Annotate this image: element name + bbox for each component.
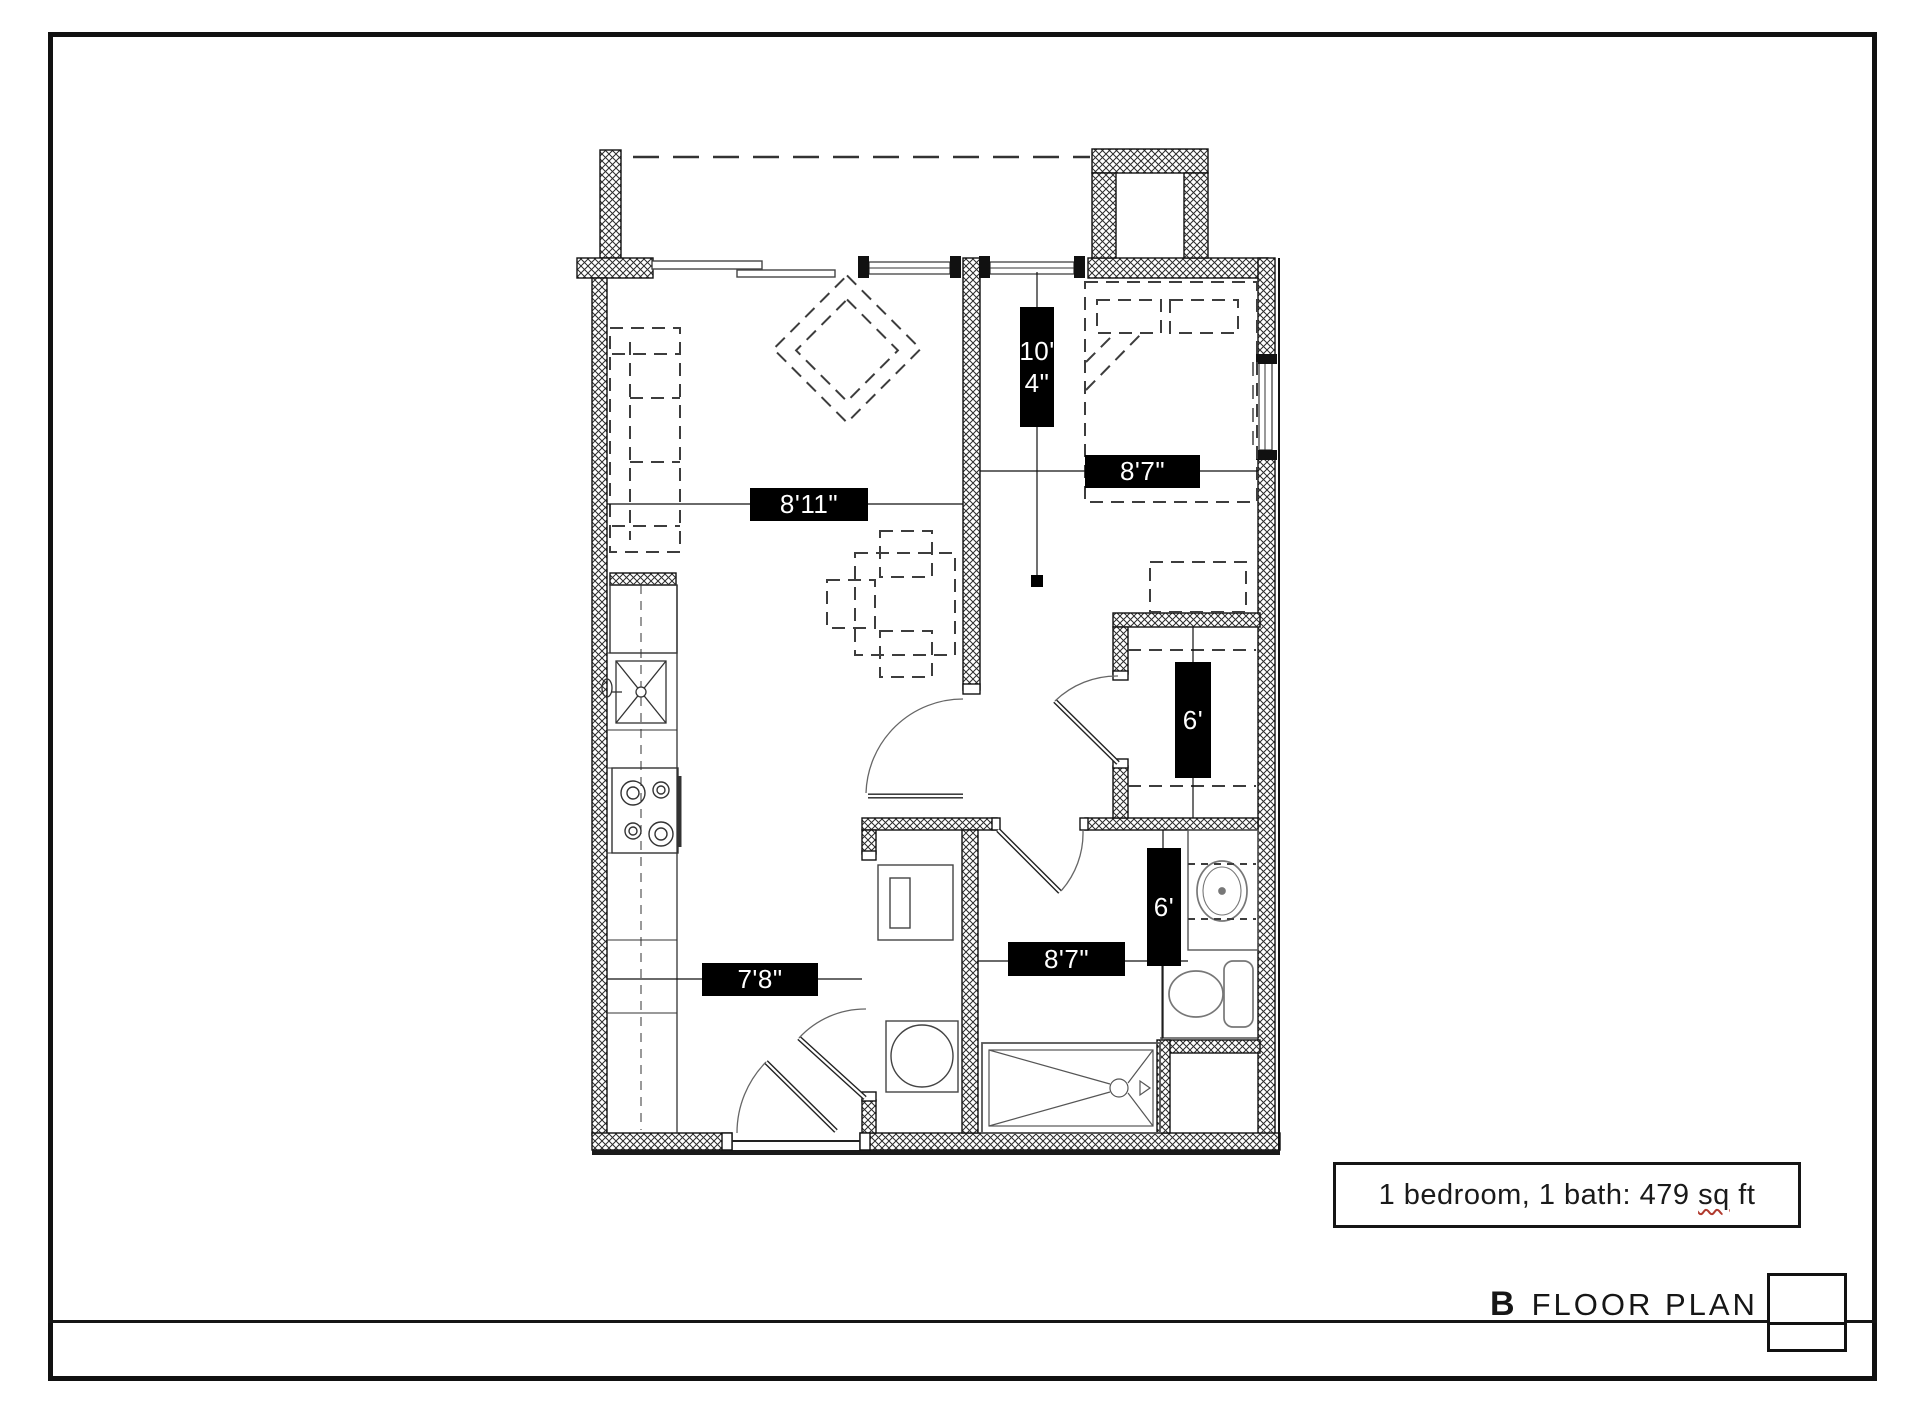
furniture-dining-set [827,531,955,677]
furniture-dresser [1150,562,1246,612]
doors [737,676,1118,1133]
bathroom-fixtures [982,830,1258,1133]
washer [886,1021,958,1092]
dim-label-bath-vertical: 6' [1147,848,1181,966]
kitchen-sink [602,661,666,723]
washer-dryer [878,865,958,1092]
entry-door [737,1062,836,1133]
dim-label-closet-vertical: 6' [1175,662,1211,778]
furniture-armchair [773,275,920,422]
toilet [1169,961,1253,1027]
unit-summary-text: 1 bedroom, 1 bath: 479 [1379,1179,1698,1212]
dim-text: 10' [1019,335,1054,368]
dim-text: 6' [1183,704,1203,737]
plan-title: B FLOOR PLAN [1490,1285,1758,1324]
vanity-sink [1197,861,1247,921]
laundry-closet-door [799,1009,866,1098]
stove [612,768,680,853]
furniture-couch [610,328,680,552]
bathroom-door [998,830,1083,892]
floor-plan-sheet: 10' 4" 8'7" 8'11" 6' 6' 8'7" 7'8" 1 bedr… [0,0,1920,1423]
dim-label-bedroom-vertical: 10' 4" [1020,307,1054,427]
shower [982,1043,1160,1133]
kitchen-fixtures [602,585,680,1133]
dryer [878,865,953,940]
title-block-divider [1770,1322,1844,1325]
dim-text: 8'7" [1044,943,1089,976]
title-block-box [1767,1273,1847,1352]
dim-text: 4" [1025,367,1050,400]
sliding-door-panel [737,270,835,277]
closet-door [1055,676,1118,763]
dim-label-bath-horizontal: 8'7" [1008,942,1125,976]
dim-text: 6' [1154,891,1174,924]
sliding-door-panel [652,261,762,269]
dim-label-kitchen-horizontal: 7'8" [702,963,818,996]
plan-letter: B [1490,1285,1516,1324]
bottom-wall-footing [592,1150,1280,1155]
entry-vestibule [1092,149,1208,258]
refrigerator [610,585,677,653]
dim-label-living-horizontal: 8'11" [750,488,868,521]
dim-text: 7'8" [737,963,782,996]
unit-summary-sq: sq [1698,1179,1730,1212]
dim-text: 8'7" [1120,455,1165,488]
dim-label-bedroom-horizontal: 8'7" [1085,455,1200,488]
unit-summary-box: 1 bedroom, 1 bath: 479 sq ft [1333,1162,1801,1228]
bedroom-door [866,699,963,796]
dim-text: 8'11" [780,488,838,521]
unit-summary-ft: ft [1730,1179,1756,1212]
plan-name: FLOOR PLAN [1532,1287,1758,1323]
